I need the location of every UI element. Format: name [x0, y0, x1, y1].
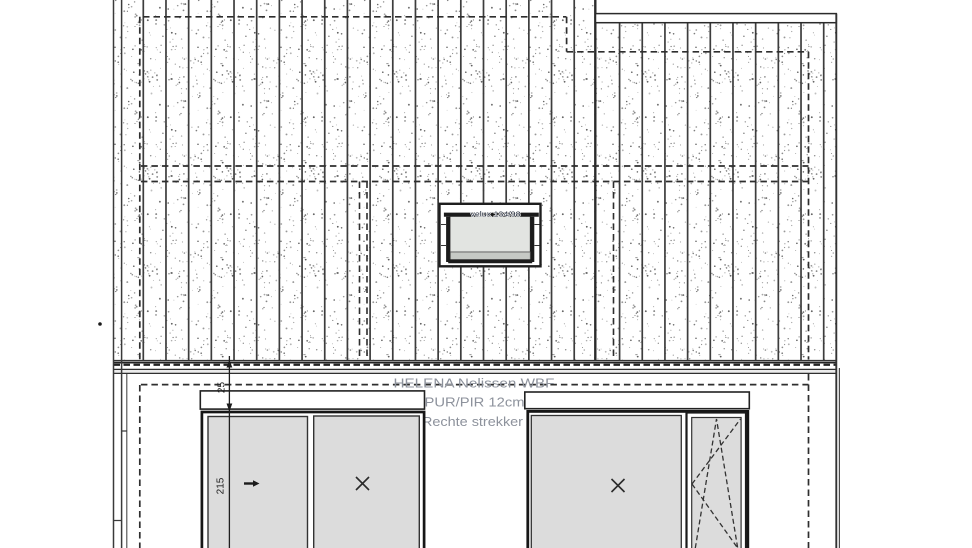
svg-text:HELENA Nelissen WBF: HELENA Nelissen WBF — [394, 376, 555, 391]
svg-text:PUR/PIR 12cm: PUR/PIR 12cm — [425, 395, 525, 410]
svg-text:velux 134/98: velux 134/98 — [471, 210, 521, 219]
svg-text:215: 215 — [216, 477, 227, 494]
svg-text:25: 25 — [217, 382, 228, 394]
svg-text:Rechte strekker: Rechte strekker — [422, 414, 524, 429]
